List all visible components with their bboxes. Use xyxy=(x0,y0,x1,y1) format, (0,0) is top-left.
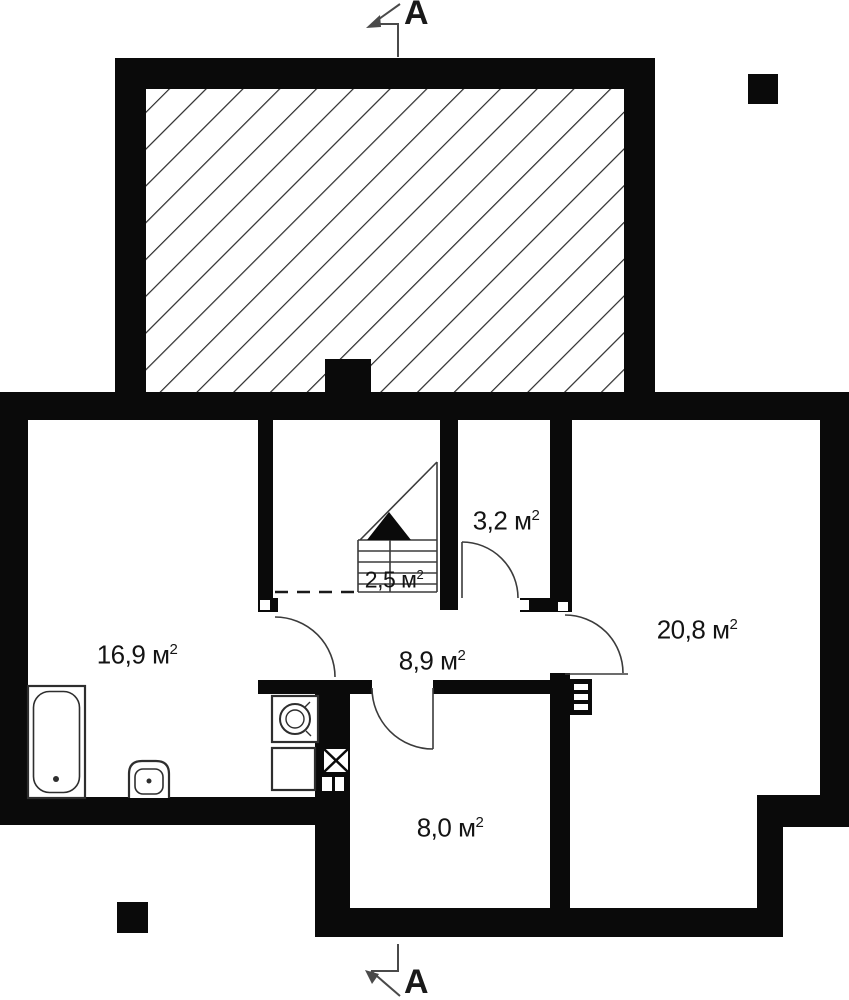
vent-duct xyxy=(322,777,332,791)
room-label-bathroom: 16,9 м2 xyxy=(97,640,178,671)
wall-mid-vertical xyxy=(315,680,350,937)
vent-duct xyxy=(335,777,344,791)
wall-garage-right xyxy=(624,58,655,420)
room-area-unit: м xyxy=(152,640,169,670)
washing-machine-drum-inner xyxy=(286,710,304,728)
room-area-exponent: 2 xyxy=(416,567,423,582)
floor-plan: A A 16,9 м2 8,9 м2 2,5 м2 3,2 м2 20,8 м2… xyxy=(0,0,849,1000)
room-area-unit: м xyxy=(458,813,475,843)
washing-machine xyxy=(272,696,318,742)
wall-garage-top xyxy=(115,58,655,89)
room-area-unit: м xyxy=(440,646,457,676)
door-arc-lower-room xyxy=(372,688,433,749)
section-mark-bottom xyxy=(365,944,400,996)
detached-pier-top-right xyxy=(748,74,778,104)
room-area-unit: м xyxy=(712,615,729,645)
room-label-living: 20,8 м2 xyxy=(657,615,738,646)
wall-top xyxy=(0,392,849,420)
room-area-exponent: 2 xyxy=(169,641,177,658)
wall-left-outer xyxy=(0,392,28,825)
section-arrowhead xyxy=(366,15,381,28)
room-label-stairs: 2,5 м2 xyxy=(365,567,423,594)
section-label-bottom: A xyxy=(404,963,429,1000)
detached-pier-bottom-left xyxy=(117,902,148,933)
panel-slot xyxy=(574,694,588,700)
door-frame-mark xyxy=(558,602,568,611)
section-mark-top xyxy=(366,4,400,57)
room-area-value: 3,2 xyxy=(473,506,508,536)
room-area-value: 8,0 xyxy=(417,813,452,843)
section-line xyxy=(371,944,398,971)
room-label-lower-room: 8,0 м2 xyxy=(417,813,484,844)
room-area-exponent: 2 xyxy=(729,616,737,633)
wall-living-left xyxy=(550,673,570,910)
door-frame-mark xyxy=(520,600,529,610)
room-area-value: 8,9 xyxy=(399,646,434,676)
room-area-value: 2,5 xyxy=(365,567,395,593)
door-frame-mark xyxy=(260,600,270,610)
door-arc-wc xyxy=(462,542,518,598)
section-label-top: A xyxy=(404,0,429,33)
bathtub-drain-icon xyxy=(53,776,59,782)
room-area-unit: м xyxy=(401,567,416,593)
room-area-exponent: 2 xyxy=(475,814,483,831)
section-line xyxy=(372,24,398,57)
wall-wc-living xyxy=(550,420,572,612)
door-arc-bathroom xyxy=(275,617,335,677)
electrical-panel xyxy=(570,679,592,715)
room-area-value: 16,9 xyxy=(97,640,146,670)
door-frames xyxy=(260,600,568,611)
wall-hall-bottom-right xyxy=(433,680,560,694)
bathtub xyxy=(28,686,85,798)
hatched-unexcavated-area xyxy=(145,88,625,392)
section-arrowhead xyxy=(365,970,379,984)
plan-drawing xyxy=(0,0,849,1000)
wall-bathroom-hall xyxy=(258,420,273,612)
room-area-exponent: 2 xyxy=(457,647,465,664)
room-area-exponent: 2 xyxy=(531,507,539,524)
room-area-value: 20,8 xyxy=(657,615,706,645)
chimney-block xyxy=(325,359,371,393)
room-area-unit: м xyxy=(514,506,531,536)
laundry-counter xyxy=(272,748,315,790)
room-label-hall: 8,9 м2 xyxy=(399,646,466,677)
wall-right-outer xyxy=(820,392,849,827)
room-label-wc: 3,2 м2 xyxy=(473,506,540,537)
wall-hall-wc xyxy=(440,420,458,610)
wall-bottom-left xyxy=(0,797,350,825)
panel-slot xyxy=(574,704,588,710)
panel-slot xyxy=(574,684,588,690)
door-arc-living xyxy=(565,615,623,673)
sink xyxy=(129,761,169,798)
wall-garage-left xyxy=(115,58,146,420)
wall-hall-bottom-left xyxy=(258,680,372,694)
sink-drain-icon xyxy=(147,779,152,784)
door-jamb xyxy=(272,598,278,612)
wall-bottom-middle xyxy=(315,908,782,937)
